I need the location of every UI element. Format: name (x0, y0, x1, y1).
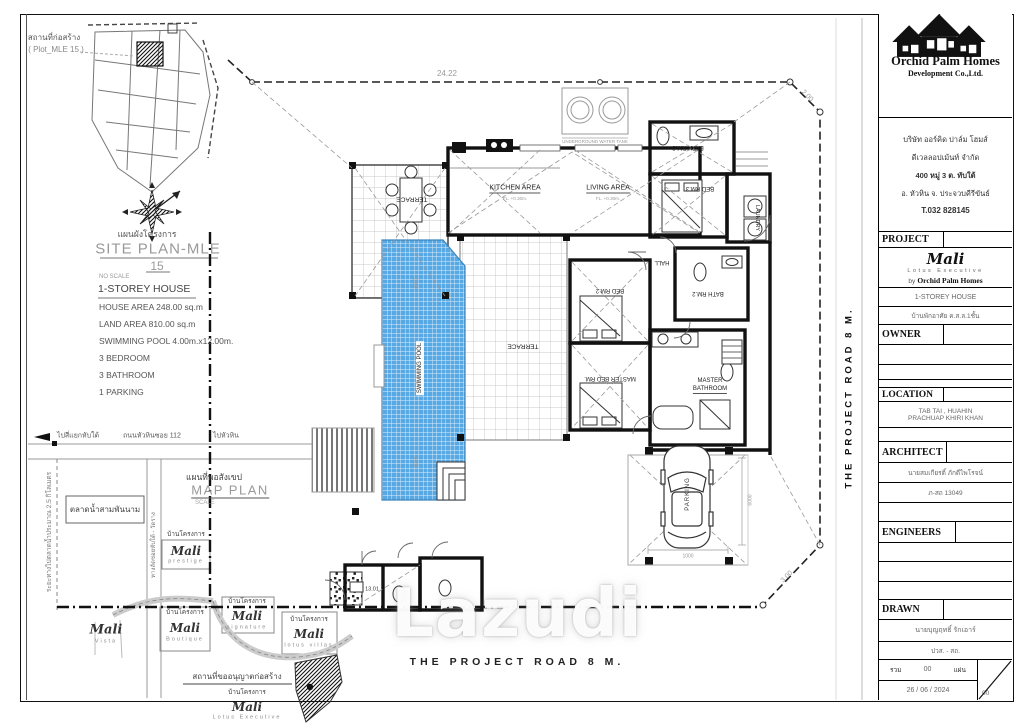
location-value-2: PRACHUAP KHIRI KHAN (908, 415, 983, 422)
map-side-road-label: ทางลัดซอยหับใต้ - วัดราง (151, 512, 157, 578)
house-info-bedroom: 3 BEDROOM (99, 354, 150, 363)
project-caption-lotus-villas: บ้านโครงการ (290, 617, 328, 624)
sink-icon (658, 334, 668, 344)
no-scale-note: NO SCALE (99, 274, 129, 280)
project-header-row: PROJECT (879, 232, 1012, 248)
tank-label: UNDERGROUND WATER TANK (562, 140, 628, 145)
map-distance-note: ระยะทางไปตลาดน้ำประมาณ 2.5 กิโลเมตร (47, 472, 54, 592)
project-caption-lotus-executive: บ้านโครงการ (228, 690, 266, 697)
architect-label: ARCHITECT (879, 442, 947, 462)
owner-empty-2 (879, 365, 1012, 380)
project-sub-signature: signature (227, 625, 268, 631)
bed-icons (580, 180, 702, 428)
project-type: 1-STOREY HOUSE (915, 294, 977, 301)
drawing-date: 26 / 06 / 2024 (907, 687, 950, 694)
spacer-row (879, 380, 1012, 388)
project-name: Mali (927, 250, 965, 268)
project-caption-signature: บ้านโครงการ (228, 599, 266, 606)
pool-ladder-icon (374, 345, 384, 387)
company-phone: T.032 828145 (921, 206, 970, 215)
architect-license: ภ-สถ 13049 (928, 488, 962, 498)
project-label: PROJECT (879, 232, 944, 247)
owner-empty-1 (879, 345, 1012, 365)
left-arrow-icon (34, 433, 50, 441)
project-by: by (908, 278, 915, 285)
dim-parking-depth: 6000 (749, 494, 754, 505)
project-type-cell: 1-STOREY HOUSE (879, 288, 1012, 307)
kitchen-floor-note: FL. +0.30m. (503, 197, 527, 202)
room-label-pool: SWIMMING POOL (416, 341, 424, 395)
room-label-laundry: LAUNDRY (753, 205, 759, 231)
project-name-vista: Mali (90, 624, 123, 637)
project-sub-prestige: prestige (168, 559, 204, 565)
architect-license-cell: ภ-สถ 13049 (879, 483, 1012, 503)
engineers-empty-2 (879, 562, 1012, 582)
owner-label: OWNER (879, 325, 944, 344)
room-label-terrace-pool: TERRACE (507, 342, 538, 349)
project-caption-prestige: บ้านโครงการ (167, 532, 205, 539)
address-line-1: บริษัท ออร์คิด ปาล์ม โฮมส์ (903, 134, 988, 146)
map-dir-right: ไปหัวหิน (213, 433, 239, 440)
room-label-master-bath-1: MASTER (697, 378, 722, 384)
house-info-land: LAND AREA 810.00 sq.m (99, 320, 195, 329)
location-header-row: LOCATION (879, 388, 1012, 402)
location-label: LOCATION (879, 388, 944, 401)
house-info-parking: 1 PARKING (99, 388, 144, 397)
siteplan-title-number: 15 (150, 260, 163, 272)
project-name-prestige: Mali (171, 545, 201, 557)
company-address: บริษัท ออร์คิด ปาล์ม โฮมส์ ดีเวลลอปเม้นท… (879, 118, 1012, 232)
bathtub-icon (653, 406, 693, 429)
sun-deck (312, 428, 374, 492)
road-label-right: THE PROJECT ROAD 8 M. (844, 307, 854, 488)
pool-steps (437, 462, 465, 500)
address-line-4: อ. หัวหิน จ. ประจวบคีรีขันธ์ (901, 188, 990, 200)
drawn-name: นายบุญฤทธิ์ รักเอาร์ (915, 625, 976, 636)
architect-empty (879, 503, 1012, 522)
map-title-thai: แผนที่พอสังเขป (186, 473, 242, 482)
company-logo-icon (879, 14, 999, 70)
map-permit-label: สถานที่ขออนุญาตก่อสร้าง (192, 673, 281, 681)
project-name-lotus-executive: Mali (232, 701, 262, 713)
room-label-hall: HALL (654, 259, 669, 265)
title-block: Orchid Palm Homes Development Co.,Ltd. บ… (878, 14, 1012, 700)
date-row: 26 / 06 / 2024 (879, 681, 977, 701)
room-label-bath3: BATH RM.3 (672, 144, 704, 150)
engineers-header-row: ENGINEERS (879, 522, 1012, 543)
dim-boundary-top: 24.22 (437, 70, 457, 78)
sheet-number-box: 00 (978, 660, 1012, 700)
map-dir-left: ไปสี่แยกหับใต้ (57, 433, 99, 440)
project-sub-boutique: Boutique (166, 637, 204, 643)
owner-header-row: OWNER (879, 325, 1012, 345)
lazudi-watermark: Lazudi (391, 574, 643, 652)
drawn-header-row: DRAWN (879, 600, 1012, 620)
architect-header-row: ARCHITECT (879, 442, 1012, 463)
drawn-title: ปวส. - สถ. (931, 646, 960, 656)
address-line-2: ดีเวลลอปเม้นท์ จำกัด (912, 152, 980, 164)
project-sub-vista: Vista (95, 639, 117, 645)
siteplan-title: SITE PLAN-MLE (95, 242, 221, 257)
sheet-total: 00 (924, 666, 932, 673)
project-type-thai: บ้านพักอาศัย ค.ส.ล.1ชั้น (912, 311, 980, 321)
architect-name: นายสมเกียรติ์ ภักดีไพโรจน์ (908, 468, 983, 478)
dim-pool-width-bottom: 4000 (415, 456, 420, 467)
map-road-name: ถนนหัวหินซอย 112 (123, 433, 181, 440)
sheet-unit-label: แผ่น (953, 665, 965, 675)
address-line-3: 400 หมู่ 3 ต. ทับใต้ (915, 170, 975, 182)
blueprint-sheet: สถานที่ก่อสร้าง ( Plot_MLE 15 ) แผนผังโค… (0, 0, 1024, 725)
location-empty (879, 428, 1012, 442)
project-caption-boutique: บ้านโครงการ (166, 610, 204, 617)
room-label-master-bath-2: BATHROOM (693, 386, 727, 394)
room-label-kitchen: KITCHEN AREA (489, 185, 540, 194)
map-scale-label: SCALE (195, 500, 215, 506)
engineers-empty-1 (879, 543, 1012, 562)
engineers-label: ENGINEERS (879, 522, 956, 542)
room-label-bath2: BATH RM.2 (692, 290, 724, 296)
house-info-title: 1-STOREY HOUSE (98, 284, 190, 295)
dim-pool-width-top: 4000 (415, 277, 420, 288)
site-plot-label: ( Plot_MLE 15 ) (28, 46, 84, 54)
water-tank-icon (562, 88, 628, 138)
project-name-signature: Mali (232, 610, 262, 622)
road-label-bottom: THE PROJECT ROAD 8 M. (410, 657, 625, 668)
location-value-cell: TAB TAI , HUAHIN PRACHUAP KHIRI KHAN (879, 402, 1012, 428)
drawn-name-cell: นายบุญฤทธิ์ รักเอาร์ (879, 620, 1012, 642)
engineers-empty-3 (879, 582, 1012, 600)
site-plan-sketch (80, 23, 218, 192)
house-info-pool: SWIMMING POOL 4.00m.x12.00m. (99, 337, 233, 346)
architect-name-cell: นายสมเกียรติ์ ภักดีไพโรจน์ (879, 463, 1012, 483)
location-value-1: TAB TAI , HUAHIN (919, 408, 973, 415)
map-title: MAP PLAN (191, 484, 269, 499)
house-info-area: HOUSE AREA 248.00 sq.m (99, 303, 203, 312)
room-label-terrace-top: TERRACE (396, 195, 427, 202)
project-by-name: Orchid Palm Homes (917, 276, 982, 285)
project-name-lotus-villas: Mali (294, 628, 324, 640)
sheet-total-label: รวม (890, 665, 901, 675)
sheet-number: 00 (982, 690, 989, 697)
site-location-label: สถานที่ก่อสร้าง (28, 34, 80, 42)
drawn-label: DRAWN (879, 600, 944, 619)
project-name-boutique: Mali (170, 622, 200, 634)
project-subname: Lotus Executive (907, 268, 983, 274)
sheet-count-row: รวม 00 แผ่น (879, 660, 977, 681)
project-type-thai-cell: บ้านพักอาศัย ค.ส.ล.1ชั้น (879, 307, 1012, 325)
room-label-master-bed: MASTER BED RM. (584, 375, 636, 381)
living-floor-note: FL. +0.30m. (596, 197, 620, 202)
drawn-title-cell: ปวส. - สถ. (879, 642, 1012, 660)
house-info-bathroom: 3 BATHROOM (99, 371, 155, 380)
project-name-cell: Mali Lotus Executive by Orchid Palm Home… (879, 248, 1012, 288)
room-label-parking: PARKING (685, 477, 691, 511)
toilet-icon (657, 127, 669, 145)
dim-parking-width: 1000 (682, 555, 693, 560)
company-header: Orchid Palm Homes Development Co.,Ltd. (879, 14, 1012, 118)
room-number-label: 13.01 (365, 587, 379, 593)
sheet-footer: รวม 00 แผ่น 26 / 06 / 2024 00 (879, 660, 1012, 700)
room-label-living: LIVING AREA (586, 185, 630, 194)
room-label-bed3: BED RM.3 (686, 185, 714, 191)
room-label-bed2: BED RM.2 (596, 287, 624, 293)
project-sub-lotus-villas: lotus villas (284, 643, 333, 649)
project-sub-lotus-executive: Lotus Executive (213, 715, 282, 721)
map-market-label: ตลาดน้ำสามพันนาม (70, 506, 140, 514)
siteplan-title-thai: แผนผังโครงการ (118, 230, 177, 239)
